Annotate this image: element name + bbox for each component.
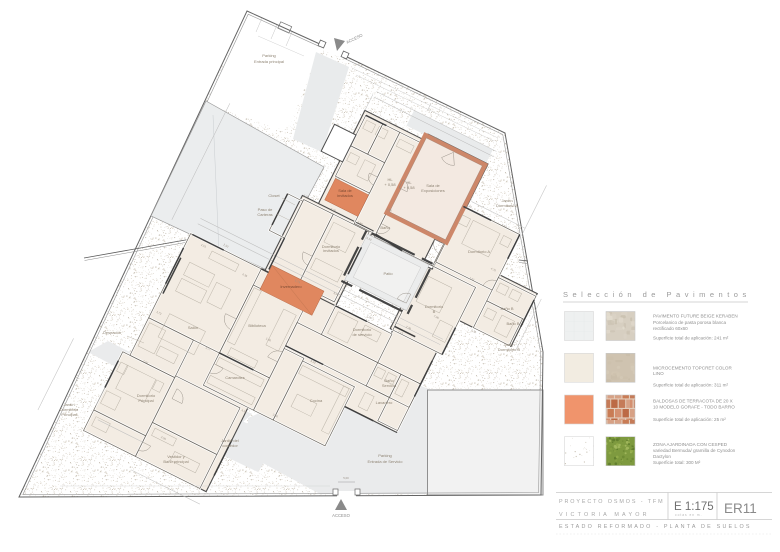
svg-text:invitados: invitados [323, 248, 339, 253]
svg-text:comedor: comedor [222, 443, 238, 448]
svg-text:variedad Bermuda/ gramilla de: variedad Bermuda/ gramilla de Cynodon [653, 448, 736, 453]
svg-text:Parking: Parking [378, 453, 392, 458]
svg-text:BALDOSAS DE TERRACOTA DE 20 X: BALDOSAS DE TERRACOTA DE 20 X [653, 399, 733, 404]
svg-text:Salón: Salón [188, 325, 198, 330]
svg-text:Closet: Closet [268, 193, 280, 198]
svg-text:invitados: invitados [337, 193, 353, 198]
svg-text:Principal: Principal [61, 412, 76, 417]
svg-text:+ 0,58: + 0,58 [384, 182, 396, 187]
svg-text:Exposiciones: Exposiciones [421, 188, 445, 193]
svg-text:PROYECTO OSMOS - TFM: PROYECTO OSMOS - TFM [559, 499, 665, 505]
svg-text:LINO: LINO [653, 371, 664, 376]
svg-text:Principal: Principal [138, 398, 153, 403]
svg-text:ESTADO REFORMADO - PLANTA DE S: ESTADO REFORMADO - PLANTA DE SUELOS [559, 524, 752, 530]
svg-text:B: B [433, 309, 436, 314]
svg-text:Lavadero: Lavadero [376, 400, 393, 405]
svg-text:Superficie total de aplicación: Superficie total de aplicación: 241 m² [653, 336, 729, 341]
svg-text:E 1:175: E 1:175 [674, 501, 714, 513]
svg-text:Selección de Pavimentos: Selección de Pavimentos [563, 290, 751, 299]
svg-text:10 MODELO GORAFE - TODO BARRO: 10 MODELO GORAFE - TODO BARRO [653, 404, 735, 409]
svg-text:+ 0,58: + 0,58 [403, 185, 415, 190]
svg-text:Cocina: Cocina [310, 398, 323, 403]
svg-text:Entrada principal: Entrada principal [254, 59, 284, 64]
svg-text:Camarotes: Camarotes [225, 375, 245, 380]
svg-text:Porcelanico de pasta porosa bl: Porcelanico de pasta porosa blanca [653, 320, 726, 325]
svg-text:Baño B: Baño B [506, 321, 519, 326]
svg-text:ACCESO: ACCESO [332, 513, 350, 518]
svg-text:Superficie total: 300 M²: Superficie total: 300 M² [653, 460, 701, 465]
svg-text:Dormitorio B: Dormitorio B [498, 347, 521, 352]
svg-text:Superficie total de aplicación: Superficie total de aplicación: 311 m² [653, 382, 728, 387]
svg-text:Baño principal: Baño principal [163, 459, 188, 464]
svg-text:de servicio: de servicio [352, 332, 372, 337]
svg-text:Baño: Baño [380, 225, 390, 230]
svg-text:VICTORIA MAYOR: VICTORIA MAYOR [559, 512, 650, 518]
svg-text:Invernadero: Invernadero [280, 284, 302, 289]
svg-text:cotas en m.: cotas en m. [675, 513, 702, 517]
svg-text:ZONA AJARDINADA CON CESPED: ZONA AJARDINADA CON CESPED [653, 442, 728, 447]
svg-text:Despacho: Despacho [103, 330, 122, 335]
svg-text:MICROCEMENTO TOPCRET COLOR: MICROCEMENTO TOPCRET COLOR [653, 366, 732, 371]
svg-text:Dormitorio A: Dormitorio A [468, 249, 490, 254]
svg-text:Entrada de Servicio: Entrada de Servicio [368, 459, 404, 464]
svg-text:rectificado 60x60: rectificado 60x60 [653, 326, 688, 331]
svg-text:Baño B: Baño B [500, 306, 513, 311]
svg-text:ER11: ER11 [724, 501, 757, 516]
svg-text:Patio: Patio [383, 271, 393, 276]
svg-text:Dactylon: Dactylon [653, 454, 671, 459]
svg-text:Dormitorio A: Dormitorio A [496, 203, 518, 208]
svg-text:PAVIMENTO FUTURE BEIGE KERABEN: PAVIMENTO FUTURE BEIGE KERABEN [653, 314, 738, 319]
svg-text:5,00: 5,00 [343, 476, 349, 480]
svg-text:Superficie total de aplicación: Superficie total de aplicación: 25 m² [653, 417, 726, 422]
svg-text:Servicio: Servicio [382, 383, 397, 388]
svg-text:Carteras: Carteras [257, 212, 272, 217]
svg-text:Parking: Parking [262, 53, 276, 58]
svg-text:Biblioteca: Biblioteca [248, 323, 266, 328]
